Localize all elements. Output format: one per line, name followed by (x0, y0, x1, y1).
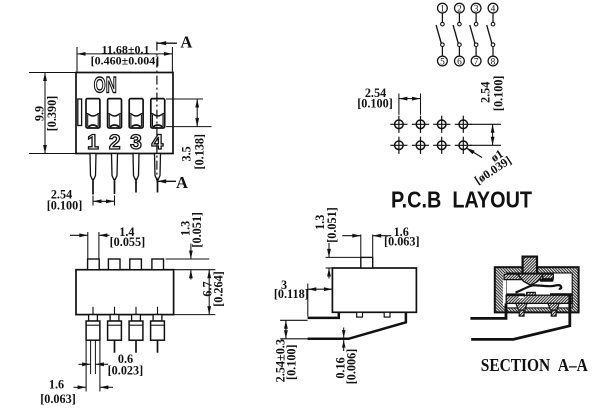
svg-text:8: 8 (491, 57, 496, 67)
svg-text:6: 6 (457, 57, 462, 67)
svg-text:[0.100]: [0.100] (492, 76, 506, 112)
svg-text:4: 4 (152, 131, 164, 154)
svg-text:[0.063]: [0.063] (384, 234, 420, 248)
svg-text:[0.390]: [0.390] (45, 96, 59, 132)
svg-text:2: 2 (109, 131, 121, 154)
svg-text:ON: ON (94, 73, 117, 98)
svg-text:3.5: 3.5 (180, 146, 194, 161)
svg-text:[0.023]: [0.023] (108, 363, 144, 377)
svg-text:3: 3 (130, 131, 142, 154)
svg-text:P.C.B LAYOUT: P.C.B LAYOUT (391, 187, 532, 213)
svg-text:[0.006]: [0.006] (344, 349, 358, 385)
svg-text:A: A (176, 173, 188, 192)
svg-text:2: 2 (457, 4, 462, 14)
svg-text:[0.051]: [0.051] (325, 207, 339, 243)
svg-text:A: A (180, 32, 192, 51)
svg-text:4: 4 (491, 4, 496, 14)
svg-text:3: 3 (474, 4, 479, 14)
svg-text:[0.264]: [0.264] (211, 271, 225, 307)
svg-text:1.6: 1.6 (49, 377, 64, 391)
svg-text:[0.063]: [0.063] (40, 392, 76, 406)
svg-text:[0.100]: [0.100] (357, 97, 393, 111)
svg-text:1: 1 (440, 4, 445, 14)
svg-text:[0.055]: [0.055] (110, 235, 146, 249)
svg-text:[0.051]: [0.051] (190, 212, 204, 248)
svg-text:SECTION A–A: SECTION A–A (481, 355, 588, 375)
svg-text:2.54: 2.54 (479, 82, 493, 103)
svg-text:[0.118]: [0.118] (274, 287, 309, 301)
svg-text:[0.138]: [0.138] (193, 134, 207, 170)
svg-text:1: 1 (87, 131, 99, 154)
svg-text:[0.100]: [0.100] (285, 344, 299, 380)
svg-text:5: 5 (440, 57, 445, 67)
svg-text:7: 7 (474, 57, 479, 67)
svg-text:[0.460±0.004]: [0.460±0.004] (91, 54, 160, 68)
svg-text:[0.100]: [0.100] (47, 199, 83, 213)
